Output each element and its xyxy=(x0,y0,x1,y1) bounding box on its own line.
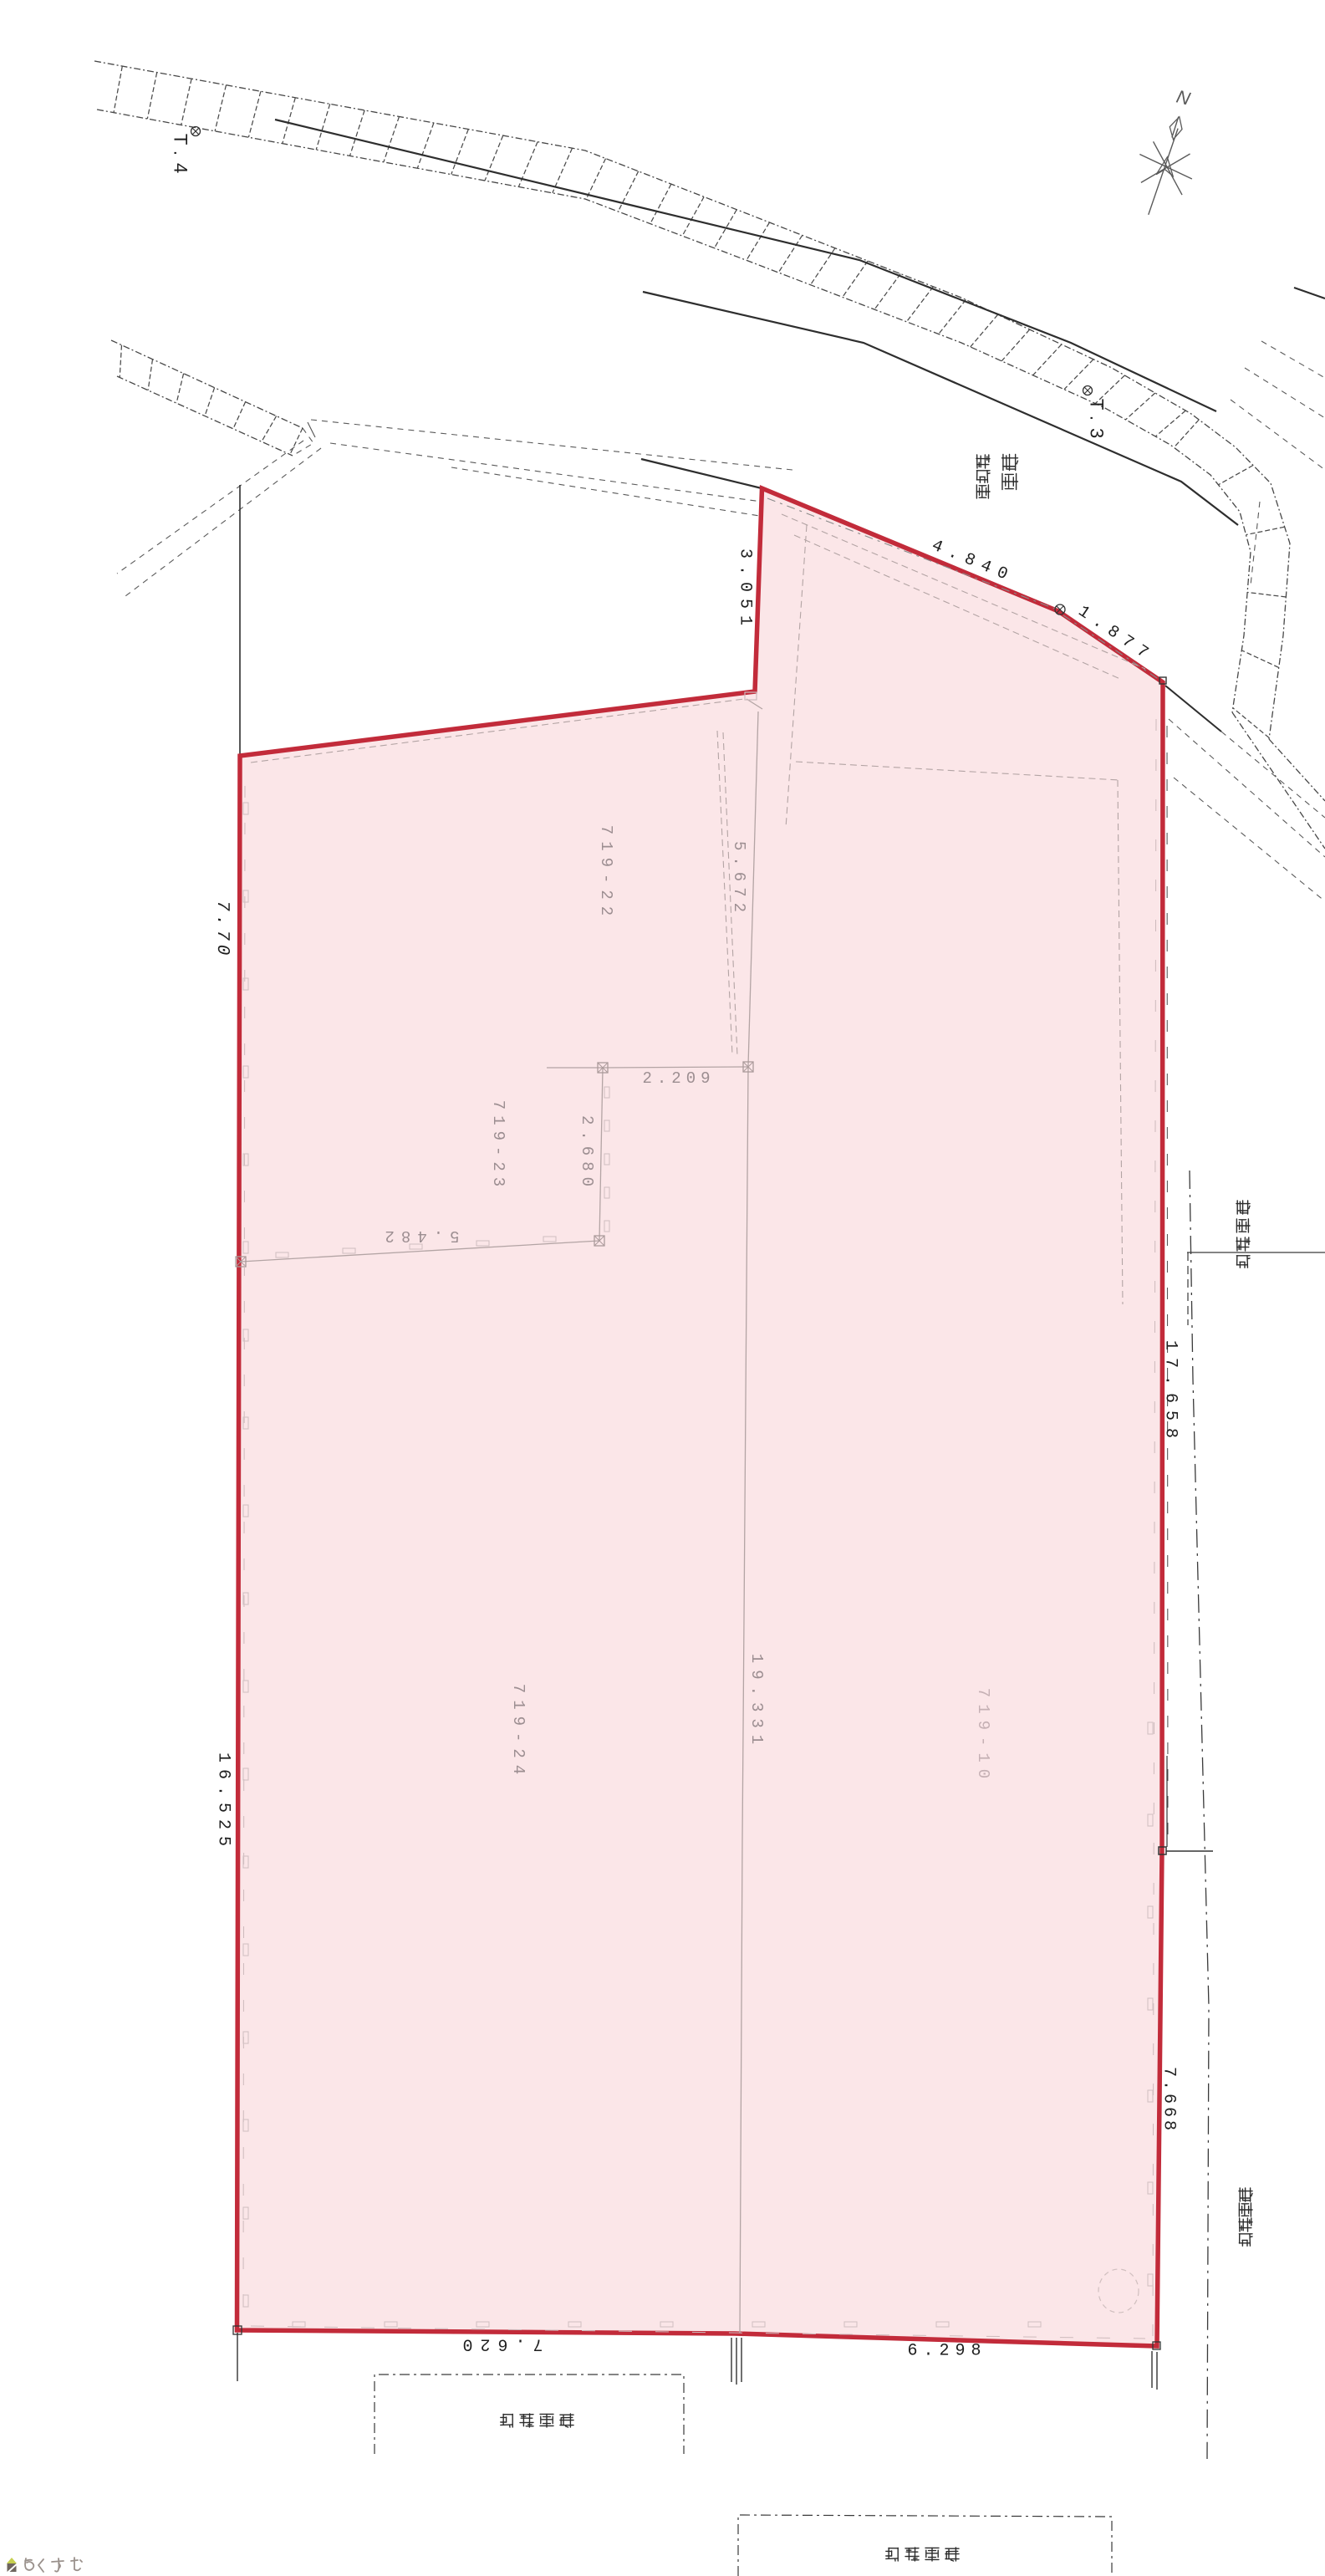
svg-text:3.051: 3.051 xyxy=(736,548,755,632)
svg-text:16.525: 16.525 xyxy=(214,1752,233,1853)
svg-text:17.658: 17.658 xyxy=(1161,1340,1180,1446)
svg-text:19.331: 19.331 xyxy=(747,1654,766,1751)
svg-text:7.70: 7.70 xyxy=(212,898,232,961)
svg-text:5.482: 5.482 xyxy=(378,1227,459,1245)
svg-text:T.3: T.3 xyxy=(1087,399,1108,446)
svg-text:6.298: 6.298 xyxy=(907,2342,986,2361)
svg-text:T.4: T.4 xyxy=(171,134,191,181)
svg-text:5.672: 5.672 xyxy=(730,841,748,918)
svg-text:719-23: 719-23 xyxy=(489,1100,507,1192)
svg-text:719-22: 719-22 xyxy=(597,825,615,922)
svg-text:2.209: 2.209 xyxy=(642,1069,715,1088)
svg-text:7.620: 7.620 xyxy=(455,2334,543,2354)
svg-text:2.680: 2.680 xyxy=(578,1115,596,1192)
svg-text:7.668: 7.668 xyxy=(1159,2067,1179,2134)
svg-text:719-10: 719-10 xyxy=(974,1688,992,1785)
svg-text:719-24: 719-24 xyxy=(509,1684,527,1781)
